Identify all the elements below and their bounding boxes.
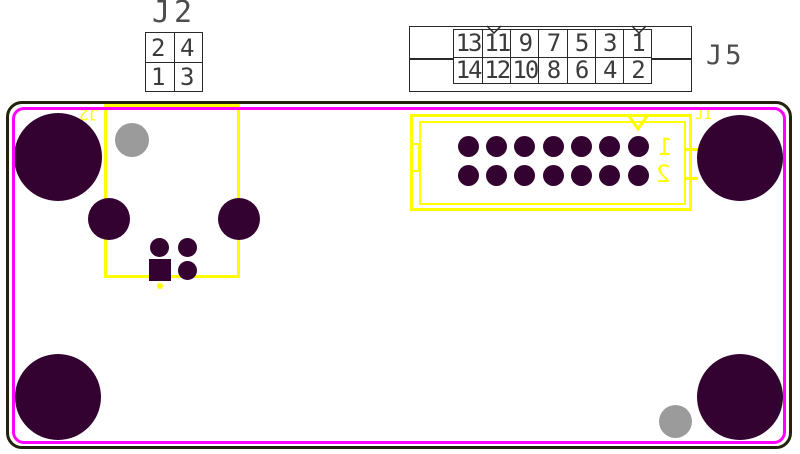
board-courtyard-outline	[12, 107, 786, 444]
j5-pin-cell-3: 3	[595, 30, 623, 57]
j5-table-title: J5	[706, 40, 745, 71]
j5-pin-cell-8: 8	[538, 57, 566, 84]
j2-pin-cell-1: 1	[146, 62, 174, 91]
j5-pin-cell-13: 13	[454, 30, 482, 57]
j5-pin-cell-7: 7	[538, 30, 566, 57]
j2-pin-cell-4: 4	[174, 33, 202, 62]
j5-pin-cell-2: 2	[623, 57, 651, 84]
j2-pin-table: 2413	[145, 32, 203, 92]
j5-pin-cell-12: 12	[482, 57, 510, 84]
j2-pin-cell-3: 3	[174, 62, 202, 91]
j5-pin-table: 1311975311412108642	[453, 29, 652, 84]
table-v-mark-left-icon	[486, 25, 502, 34]
j5-pin-cell-10: 10	[510, 57, 538, 84]
j5-pin-cell-5: 5	[567, 30, 595, 57]
pcb-cad-view: J2 1 2 J1 J2 2413 1311975311412108642 J5	[0, 0, 800, 454]
j5-pin-cell-9: 9	[510, 30, 538, 57]
j2-pin-cell-2: 2	[146, 33, 174, 62]
table-v-mark-right-icon	[631, 25, 647, 34]
j5-pin-cell-6: 6	[567, 57, 595, 84]
j5-pin-cell-4: 4	[595, 57, 623, 84]
j5-pin-cell-14: 14	[454, 57, 482, 84]
j2-table-title: J2	[145, 0, 203, 30]
